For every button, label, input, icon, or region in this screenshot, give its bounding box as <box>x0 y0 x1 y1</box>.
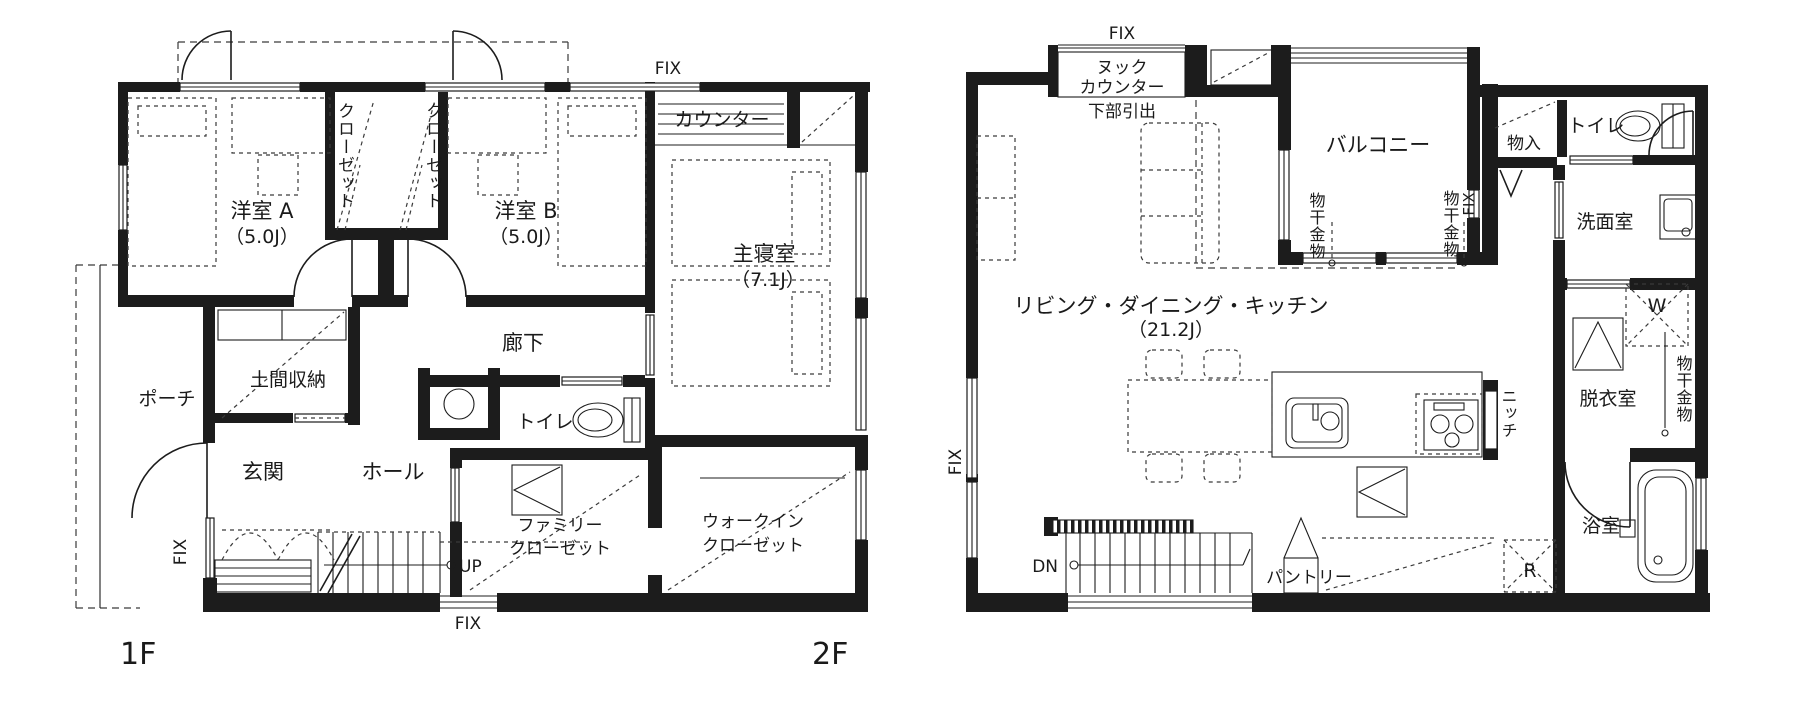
ldk-size: （21.2J） <box>1128 319 1214 341</box>
wic-label-2: クローゼット <box>702 536 804 556</box>
dressing-room-label: 脱衣室 <box>1579 388 1636 410</box>
eave-lines-2f <box>1196 100 1460 268</box>
pantry-label: パントリー <box>1266 568 1352 588</box>
nook-label-2: カウンター <box>1080 78 1165 98</box>
fix-label-west-2f: FIX <box>946 448 966 475</box>
family-closet-label-2: クローゼット <box>509 539 611 559</box>
labels-1f: FIX カウンター クローゼット クローゼット 洋室 A （5.0J） 洋室 B… <box>120 59 805 672</box>
balcony-label: バルコニー <box>1326 133 1431 157</box>
dressing-shelf-2f <box>1573 318 1668 436</box>
laundry-hardware-label-2: 物干金物 <box>1441 190 1460 258</box>
fix-label-top-1f: FIX <box>655 59 682 79</box>
washer-label: W <box>1648 295 1667 317</box>
laundry-hardware-label-3: 物干金物 <box>1674 355 1693 423</box>
corridor-label: 廊下 <box>502 331 544 355</box>
nook-label-1: ヌック <box>1097 58 1148 78</box>
master-bedroom-name: 主寝室 <box>733 242 796 266</box>
counter-label: カウンター <box>674 109 769 131</box>
shoe-cabinet-1f <box>215 530 334 592</box>
dn-label: DN <box>1032 557 1058 577</box>
hall-label: ホール <box>362 460 425 484</box>
porch-label: ポーチ <box>138 388 195 410</box>
fix-label-balcony: FIX <box>1460 192 1478 215</box>
fridge-label: R <box>1523 560 1536 582</box>
floor-2f: FIX ヌック カウンター 下部引出 バルコニー 物干金物 物干金物 FIX 物… <box>812 24 1710 672</box>
floor-plan-page: FIX カウンター クローゼット クローゼット 洋室 A （5.0J） 洋室 B… <box>0 0 1800 713</box>
washroom-sink-icon-2f <box>1660 195 1696 239</box>
room-a-name: 洋室 A <box>230 199 294 223</box>
family-closet-label-1: ファミリー <box>518 516 603 536</box>
ldk-shelf-2f <box>1357 467 1407 517</box>
washroom-label: 洗面室 <box>1576 211 1633 233</box>
bathtub-icon-2f <box>1620 470 1693 582</box>
wic-label-1: ウォークイン <box>702 512 804 532</box>
doma-shelves-1f <box>218 310 346 418</box>
fix-label-bottom-1f: FIX <box>455 614 482 634</box>
floor-name-1f: 1F <box>120 637 156 672</box>
closet-b-label: クローゼット <box>422 102 442 210</box>
stairs-2f <box>1050 520 1252 593</box>
toilet-icon-1f <box>573 398 640 442</box>
floor-1f: FIX カウンター クローゼット クローゼット 洋室 A （5.0J） 洋室 B… <box>76 31 870 672</box>
floor-name-2f: 2F <box>812 637 848 672</box>
fix-label-top-2f: FIX <box>1109 24 1136 44</box>
kitchen-2f <box>1272 372 1497 457</box>
eave-lines-1f <box>76 42 568 608</box>
toilet-label-1f: トイレ <box>516 411 573 433</box>
toilet-label-2f: トイレ <box>1567 115 1624 137</box>
entrance-label: 玄関 <box>242 460 284 484</box>
closet-a-label: クローゼット <box>334 102 354 210</box>
niche-label: ニッチ <box>1499 388 1518 439</box>
bath-label: 浴室 <box>1582 515 1620 537</box>
laundry-hardware-label-1: 物干金物 <box>1307 192 1326 260</box>
washbasin-icon-1f <box>444 389 474 419</box>
toilet-icon-2f <box>1616 104 1684 148</box>
storage-label-2f: 物入 <box>1507 134 1541 154</box>
doma-storage-label: 土間収納 <box>250 369 326 391</box>
room-b-name: 洋室 B <box>494 199 557 223</box>
ldk-name: リビング・ダイニング・キッチン <box>1014 294 1329 318</box>
room-a-size: （5.0J） <box>225 226 299 248</box>
up-label: UP <box>459 557 482 577</box>
room-b-size: （5.0J） <box>489 226 563 248</box>
master-bedroom-size: （7.1J） <box>731 269 805 291</box>
floor-plan-drawing: FIX カウンター クローゼット クローゼット 洋室 A （5.0J） 洋室 B… <box>0 0 1800 713</box>
fix-label-entrance: FIX <box>171 538 191 565</box>
drawer-label: 下部引出 <box>1088 102 1156 122</box>
